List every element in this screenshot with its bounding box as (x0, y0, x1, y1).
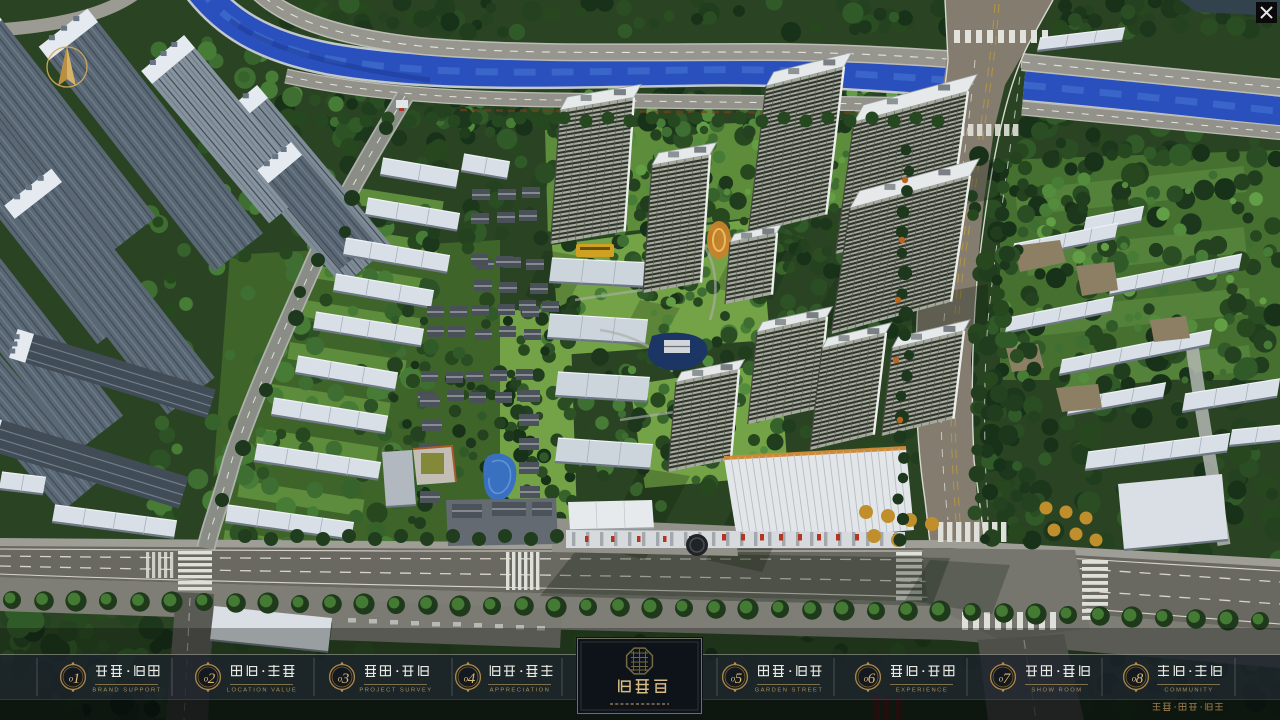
svg-text:SHOW ROOM: SHOW ROOM (1031, 688, 1082, 694)
svg-text:GARDEN STREET: GARDEN STREET (755, 688, 824, 694)
svg-text:BRAND SUPPORT: BRAND SUPPORT (92, 688, 161, 694)
svg-text:PROJECT SURVEY: PROJECT SURVEY (359, 688, 432, 694)
svg-text:COMMUNITY: COMMUNITY (1164, 688, 1213, 694)
svg-text:5: 5 (735, 671, 743, 687)
svg-text:2: 2 (208, 671, 216, 687)
svg-text:3: 3 (341, 671, 350, 687)
svg-text:1: 1 (73, 671, 81, 687)
svg-text:4: 4 (468, 671, 476, 687)
svg-text:EXPERIENCE: EXPERIENCE (896, 688, 948, 694)
svg-text:6: 6 (868, 671, 876, 687)
svg-text:LOCATION VALUE: LOCATION VALUE (227, 688, 297, 694)
svg-text:8: 8 (1136, 671, 1144, 687)
svg-text:APPRECIATION: APPRECIATION (490, 688, 551, 694)
